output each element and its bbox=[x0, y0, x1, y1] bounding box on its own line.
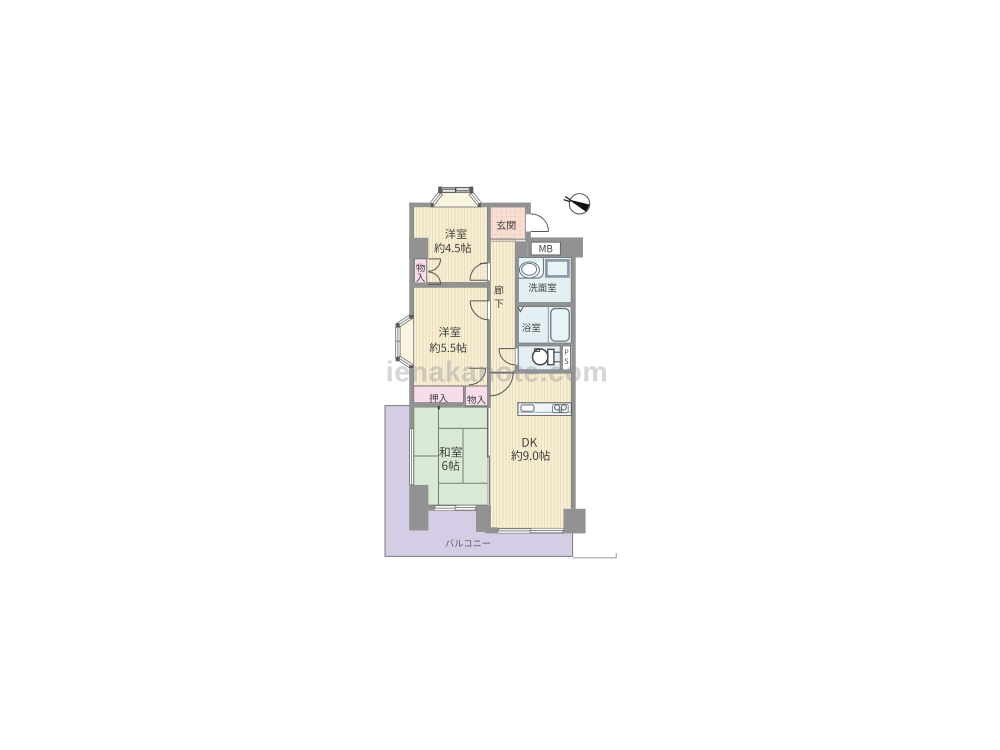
svg-text:ienakanote.com: ienakanote.com bbox=[386, 357, 608, 389]
